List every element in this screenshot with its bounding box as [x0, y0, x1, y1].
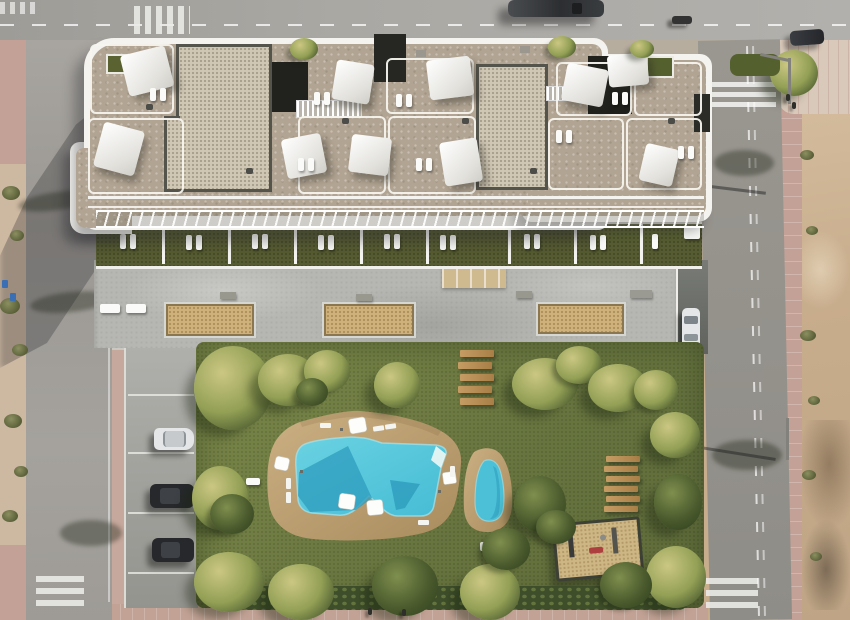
roof-table — [342, 118, 349, 124]
roof-lounger — [160, 88, 166, 101]
roof-lounger — [556, 130, 562, 143]
palm-tree — [460, 564, 520, 620]
raised-roof-block-right — [476, 64, 548, 190]
shade-sail — [348, 134, 392, 177]
palm-tree — [646, 546, 706, 608]
tree — [600, 562, 652, 608]
plaza-bench — [100, 304, 120, 313]
scrub-bush — [14, 466, 28, 477]
plaza-bench — [356, 294, 372, 301]
blue-bin — [2, 280, 8, 288]
scrub-bush — [2, 186, 20, 200]
terrace-lounger — [384, 234, 390, 249]
tree — [372, 556, 438, 616]
plaza-bench — [516, 291, 532, 298]
terrace-lounger — [394, 234, 400, 249]
plaza-bench — [630, 290, 652, 298]
shade-sail — [561, 62, 609, 107]
garden-step — [458, 386, 492, 393]
garden-bench — [604, 506, 638, 512]
roof-table — [668, 118, 675, 124]
blue-bin — [10, 293, 16, 301]
car-roof — [161, 542, 180, 558]
sidewalk-palm — [290, 38, 318, 60]
roof-lounger — [622, 92, 628, 105]
plaza-bench — [220, 292, 236, 299]
scrub-bush — [12, 344, 28, 356]
tree — [194, 552, 264, 612]
scrub-bush — [800, 330, 816, 341]
pergola-band — [96, 210, 704, 228]
van-top-road — [508, 0, 604, 17]
plaza-bench — [126, 304, 146, 313]
garden-bench — [604, 486, 638, 492]
parked-car-dark — [152, 538, 194, 562]
parking-line — [128, 512, 194, 514]
facade-line — [88, 206, 704, 208]
crosswalk-right-top — [712, 82, 776, 110]
entrance-landing-steps — [442, 266, 506, 288]
shade-sail — [281, 133, 328, 180]
scrub-bush — [10, 230, 24, 241]
shade-sail — [439, 137, 483, 186]
facade-line — [88, 196, 704, 199]
aerial-photo-stage — [0, 0, 850, 620]
bushes — [482, 528, 530, 570]
play-bar — [611, 527, 618, 553]
palm-tree — [268, 564, 334, 620]
roof-ac-unit — [416, 50, 426, 57]
sand-rough-patch — [802, 520, 850, 610]
palm-tree — [650, 412, 700, 458]
car-windshield — [684, 316, 698, 324]
scrub-bush — [4, 414, 22, 428]
crosswalk-top — [134, 6, 190, 34]
scrub-bush — [800, 150, 814, 160]
parked-car-white — [154, 428, 194, 450]
roof-lounger — [566, 130, 572, 143]
roof-lounger — [308, 158, 314, 171]
parked-car-dark — [150, 484, 194, 508]
terrace-lounger — [450, 235, 456, 250]
terrace-lounger — [440, 235, 446, 250]
sidewalk-left-pink-bottom — [0, 545, 26, 620]
garden-bench — [606, 456, 640, 462]
garden-step — [458, 362, 492, 369]
roof-table — [530, 168, 537, 174]
terrace-lounger — [186, 235, 192, 250]
bushes — [536, 510, 576, 544]
scrub-bush — [808, 396, 820, 405]
tree — [296, 378, 328, 406]
terrace-lounger — [196, 235, 202, 250]
play-seat-red — [589, 547, 603, 554]
roof-table — [146, 104, 153, 110]
roof-lounger — [688, 146, 694, 159]
shrub — [210, 494, 254, 534]
roof-garden-strip — [646, 56, 674, 78]
car-rear-window — [684, 334, 698, 341]
sand-rough-patch — [796, 230, 850, 310]
terrace-lounger — [328, 235, 334, 250]
roof-lounger — [150, 88, 156, 101]
terrace-lounger — [590, 235, 596, 250]
garden-bench — [606, 476, 640, 482]
road-top — [0, 0, 850, 40]
shade-sail — [426, 55, 475, 100]
car-roof — [163, 431, 186, 447]
terrace-lounger — [524, 234, 530, 249]
roof-lounger — [406, 94, 412, 107]
bushes — [654, 474, 702, 530]
scrub-bush — [806, 226, 818, 235]
terrace-lounger — [120, 234, 126, 249]
pools-and-deck — [236, 396, 536, 546]
scrub-bush — [802, 470, 816, 480]
roof-lounger — [298, 158, 304, 171]
scrub-bush — [810, 552, 822, 561]
sand-planter — [324, 304, 414, 336]
crosswalk-left-bottom — [36, 576, 84, 610]
terrace-lounger — [652, 234, 658, 249]
terrace-lounger — [262, 234, 268, 249]
raised-roof-block-left — [176, 44, 272, 192]
roof-lounger — [426, 158, 432, 171]
roof-table — [246, 168, 253, 174]
tree-shadow-right-road — [714, 150, 774, 176]
garden-bench — [604, 466, 638, 472]
van-windshield — [572, 3, 582, 14]
roof-terrace-outline — [548, 118, 624, 190]
sidewalk-palm — [548, 36, 576, 58]
roof-table — [462, 118, 469, 124]
terrace-lounger — [600, 235, 606, 250]
sand-planter — [538, 304, 624, 334]
parking-line — [128, 394, 194, 396]
terrace-lounger — [130, 234, 136, 249]
pedestrian — [402, 609, 406, 616]
lane-dashes-top — [0, 24, 850, 26]
terrace-lounger — [318, 235, 324, 250]
garden-step — [460, 350, 494, 357]
car-top-right-corner — [790, 29, 825, 46]
shade-sail — [331, 59, 375, 104]
tree — [634, 370, 678, 410]
sidewalk-left-pink-top — [0, 40, 26, 164]
roof-lounger — [416, 158, 422, 171]
pedestrian — [792, 102, 796, 109]
crosswalk-top-corner — [0, 2, 36, 14]
sidewalk-palm — [630, 40, 654, 58]
street-light-pole — [786, 418, 789, 460]
crosswalk-right-bottom — [706, 578, 758, 612]
parking-line — [128, 572, 194, 574]
motorbike — [672, 16, 692, 24]
play-ball — [600, 534, 607, 541]
sand-planter — [166, 304, 254, 336]
garden-step — [460, 374, 494, 381]
roof-lounger — [314, 92, 320, 105]
pedestrian — [368, 608, 372, 615]
scrub-bush — [2, 510, 18, 522]
palm-tree — [374, 362, 420, 408]
terrace-divider — [640, 222, 643, 264]
tree-shadow-road — [60, 520, 122, 546]
roof-lounger — [678, 146, 684, 159]
roof-lounger — [396, 94, 402, 107]
roof-ac-unit — [520, 46, 530, 53]
roof-lounger — [324, 92, 330, 105]
terrace-lounger — [252, 234, 258, 249]
terrace-lounger — [534, 234, 540, 249]
pedestrian — [786, 94, 790, 101]
roof-lounger — [612, 92, 618, 105]
parking-strip — [124, 338, 198, 608]
car-roof — [160, 488, 180, 504]
parking-line — [128, 452, 194, 454]
road-right — [698, 39, 792, 620]
garden-bench — [606, 496, 640, 502]
